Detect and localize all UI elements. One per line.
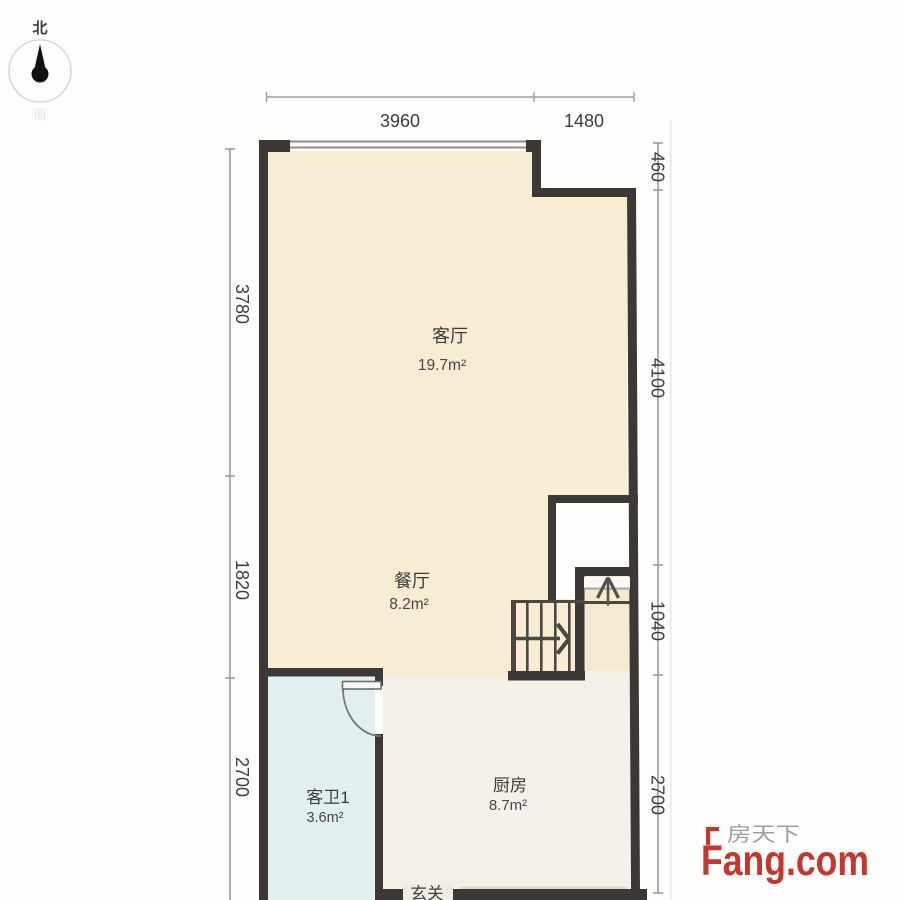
svg-text:北: 北 bbox=[32, 20, 47, 37]
svg-text:460: 460 bbox=[648, 152, 668, 182]
svg-text:客卫1: 客卫1 bbox=[306, 788, 349, 807]
svg-text:厨房: 厨房 bbox=[493, 776, 527, 795]
svg-text:2700: 2700 bbox=[648, 775, 668, 815]
svg-text:8.2m²: 8.2m² bbox=[389, 596, 429, 613]
svg-text:玄关: 玄关 bbox=[411, 884, 444, 900]
svg-text:1480: 1480 bbox=[564, 111, 604, 131]
svg-text:3780: 3780 bbox=[232, 284, 252, 324]
svg-text:1040: 1040 bbox=[648, 601, 668, 641]
svg-text:Fang.com: Fang.com bbox=[701, 837, 869, 885]
svg-text:南: 南 bbox=[33, 107, 46, 122]
svg-text:餐厅: 餐厅 bbox=[394, 571, 430, 591]
svg-text:客厅: 客厅 bbox=[432, 326, 468, 346]
svg-text:3.6m²: 3.6m² bbox=[306, 810, 343, 826]
svg-text:19.7m²: 19.7m² bbox=[418, 357, 466, 374]
svg-text:4100: 4100 bbox=[648, 358, 668, 398]
svg-text:2700: 2700 bbox=[232, 757, 252, 797]
svg-text:8.7m²: 8.7m² bbox=[489, 797, 527, 814]
svg-text:1820: 1820 bbox=[232, 560, 252, 600]
svg-text:3960: 3960 bbox=[380, 111, 420, 131]
